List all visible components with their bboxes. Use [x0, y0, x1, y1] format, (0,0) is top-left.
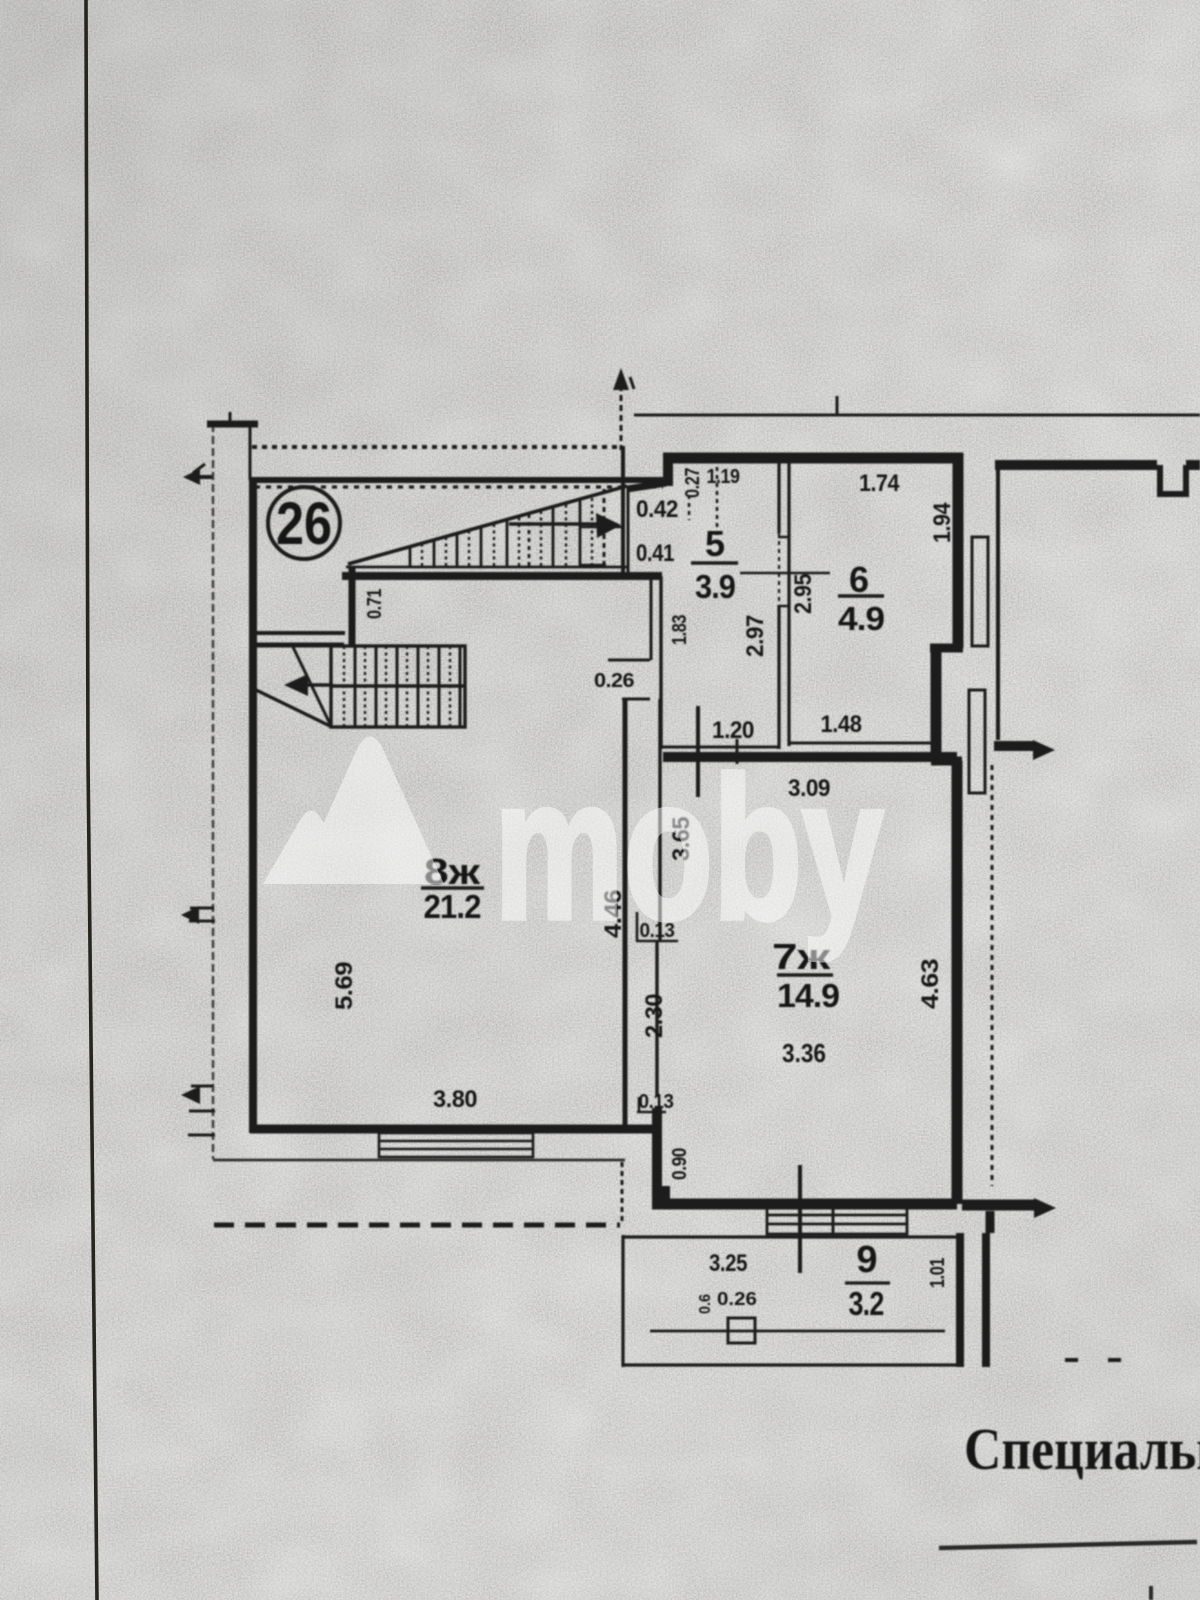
svg-text:0.41: 0.41: [636, 540, 674, 567]
svg-text:4.63: 4.63: [917, 959, 944, 1009]
svg-text:5: 5: [705, 523, 725, 564]
svg-text:0.90: 0.90: [669, 1148, 691, 1180]
svg-text:5.69: 5.69: [331, 962, 358, 1010]
svg-text:4.9: 4.9: [838, 600, 885, 637]
svg-text:3.80: 3.80: [433, 1086, 477, 1113]
svg-text:9: 9: [856, 1239, 877, 1281]
svg-text:1.74: 1.74: [859, 470, 900, 497]
svg-text:3.2: 3.2: [849, 1285, 885, 1322]
svg-text:26: 26: [276, 490, 332, 557]
svg-text:2.97: 2.97: [742, 615, 769, 657]
svg-text:1.83: 1.83: [669, 615, 691, 645]
svg-text:6: 6: [849, 559, 869, 600]
svg-text:moby: moby: [494, 737, 883, 961]
svg-text:0.71: 0.71: [364, 589, 386, 619]
svg-text:Специальн: Специальн: [964, 1416, 1200, 1482]
svg-text:2.30: 2.30: [641, 994, 668, 1038]
svg-text:1.48: 1.48: [821, 711, 862, 738]
svg-text:0.26: 0.26: [594, 670, 634, 692]
svg-text:1.94: 1.94: [929, 502, 956, 543]
svg-text:2.95: 2.95: [790, 574, 817, 614]
svg-text:14.9: 14.9: [777, 977, 840, 1014]
svg-text:3.9: 3.9: [695, 568, 736, 605]
svg-text:1.01: 1.01: [927, 1258, 949, 1288]
svg-text:1.19: 1.19: [707, 466, 740, 488]
svg-text:0.42: 0.42: [636, 496, 678, 523]
svg-text:0.27: 0.27: [682, 468, 704, 498]
svg-text:0.26: 0.26: [717, 1289, 757, 1309]
svg-text:3.36: 3.36: [782, 1038, 826, 1068]
svg-text:3.25: 3.25: [709, 1250, 747, 1277]
svg-text:0.6: 0.6: [697, 1294, 714, 1314]
svg-text:21.2: 21.2: [424, 888, 482, 925]
